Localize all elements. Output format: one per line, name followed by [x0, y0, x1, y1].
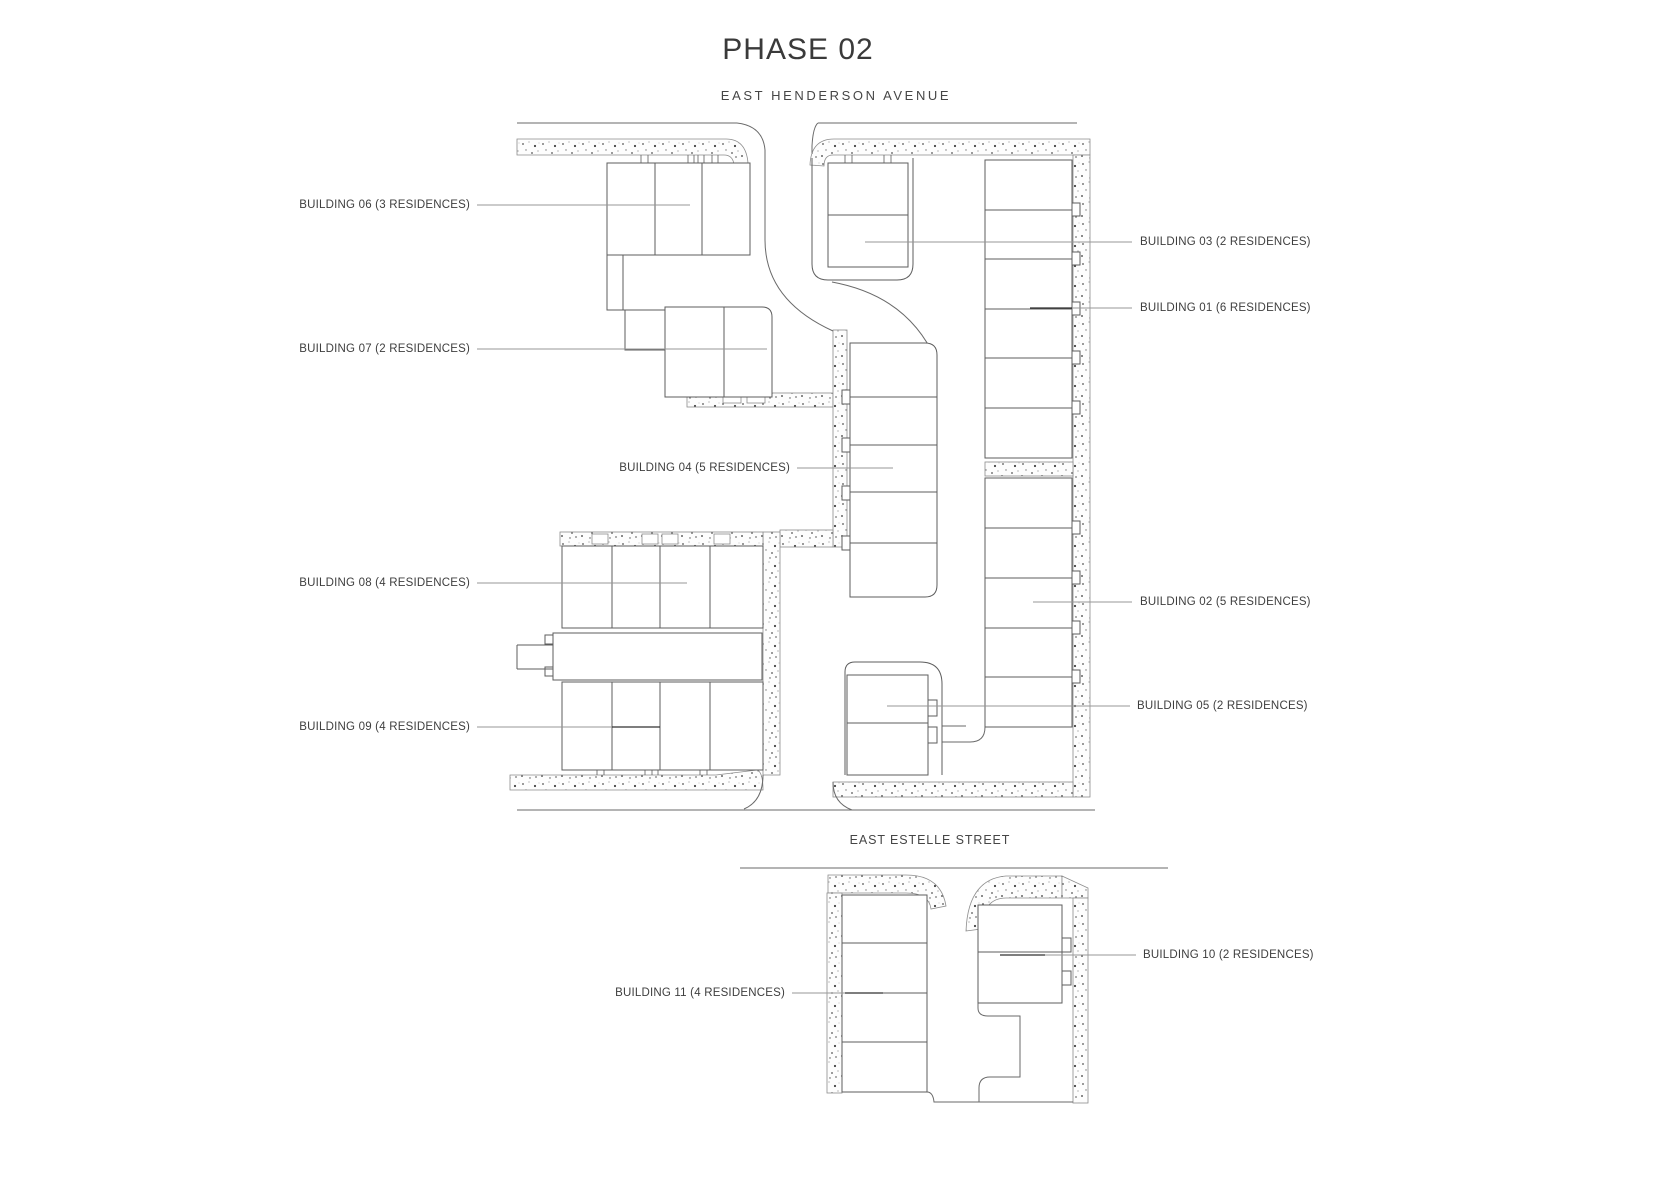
label-building-01: BUILDING 01 (6 RESIDENCES)	[1140, 300, 1311, 316]
building-01-footprint	[985, 160, 1080, 458]
building-03-footprint	[828, 155, 908, 267]
sidewalk-central-west	[780, 530, 833, 547]
sidewalk-below-b09	[510, 770, 763, 790]
label-building-06: BUILDING 06 (3 RESIDENCES)	[299, 197, 470, 213]
street-label-east-estelle-street: EAST ESTELLE STREET	[850, 833, 1011, 847]
sidewalk-separator-b01-b02	[985, 462, 1073, 476]
page-title: PHASE 02	[722, 33, 873, 67]
street-label-east-henderson-avenue: EAST HENDERSON AVENUE	[721, 88, 951, 103]
sidewalk-south-main	[833, 782, 1073, 797]
sidewalk-north-left	[517, 139, 748, 165]
sidewalk-b10-top-slant	[1062, 876, 1088, 898]
label-building-10: BUILDING 10 (2 RESIDENCES)	[1143, 947, 1314, 963]
label-building-02: BUILDING 02 (5 RESIDENCES)	[1140, 594, 1311, 610]
building-07-footprint	[625, 307, 772, 397]
building-09-footprint	[562, 682, 763, 775]
sidewalk-east-of-b08	[763, 532, 780, 775]
site-plan-page: PHASE 02 EAST HENDERSON AVENUE EAST ESTE…	[0, 0, 1680, 1187]
parking-strip	[517, 633, 762, 680]
sidewalk-east-vertical	[1073, 155, 1090, 797]
label-building-07: BUILDING 07 (2 RESIDENCES)	[299, 341, 470, 357]
building-08-footprint	[562, 546, 763, 628]
label-building-03: BUILDING 03 (2 RESIDENCES)	[1140, 234, 1311, 250]
label-building-11: BUILDING 11 (4 RESIDENCES)	[615, 985, 785, 1001]
sidewalk-above-b08	[560, 532, 763, 546]
building-10-footprint	[978, 905, 1071, 1003]
label-building-09: BUILDING 09 (4 RESIDENCES)	[299, 719, 470, 735]
building-05-footprint	[847, 675, 937, 775]
building-04-footprint	[842, 343, 937, 597]
sidewalk-b10-east	[1073, 898, 1088, 1103]
label-building-05: BUILDING 05 (2 RESIDENCES)	[1137, 698, 1308, 714]
site-plan-drawing	[0, 0, 1680, 1187]
label-building-08: BUILDING 08 (4 RESIDENCES)	[299, 575, 470, 591]
label-building-04: BUILDING 04 (5 RESIDENCES)	[619, 460, 790, 476]
building-02-footprint	[985, 478, 1080, 727]
